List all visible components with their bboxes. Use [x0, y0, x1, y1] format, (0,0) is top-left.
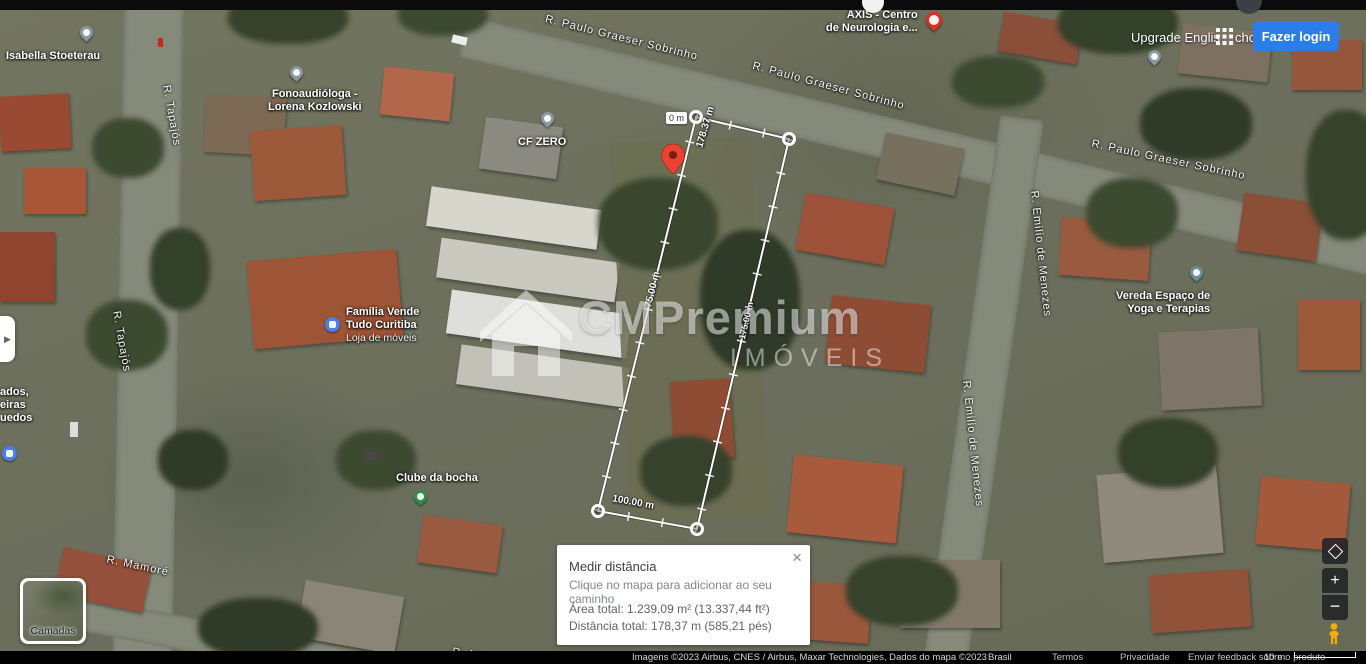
watermark-brand: CMPremium	[578, 290, 861, 345]
shopping-poi-icon[interactable]	[2, 446, 17, 461]
map-vegetation	[198, 598, 318, 658]
chevron-right-icon: ▶	[4, 334, 11, 344]
privacy-link[interactable]: Privacidade	[1120, 652, 1170, 663]
map-vegetation	[952, 56, 1044, 108]
my-location-button[interactable]	[1322, 538, 1348, 564]
upgrade-label[interactable]: Upgrade Englis	[1131, 30, 1220, 45]
map-vegetation	[640, 436, 732, 506]
poi-label-clube-da-bocha[interactable]: Clube da bocha	[396, 472, 478, 485]
map-vegetation	[1140, 88, 1252, 160]
property-marker-icon[interactable]	[661, 144, 685, 174]
distance-total-value: Distância total: 178,37 m (585,21 pés)	[569, 619, 772, 633]
navigation-diamond-icon	[1328, 544, 1344, 560]
watermark-house-icon	[476, 276, 576, 380]
poi-line: uedos	[0, 412, 32, 425]
google-maps-screenshot: R. Paulo Graeser Sobrinho R. Paulo Graes…	[0, 0, 1366, 664]
area-total-value: Área total: 1.239,09 m² (13.337,44 ft²)	[569, 602, 770, 616]
map-building	[250, 125, 347, 201]
map-building	[24, 168, 86, 214]
watermark-subtitle: IMÓVEIS	[686, 344, 890, 373]
poi-subtitle: Loja de móveis	[346, 332, 419, 345]
scale-label: 10 m	[1264, 652, 1285, 663]
poi-label-vereda[interactable]: Vereda Espaço de Yoga e Terapias	[1116, 290, 1210, 316]
close-icon[interactable]: ×	[792, 549, 802, 566]
layers-label: Camadas	[23, 625, 83, 637]
map-vehicle	[70, 422, 78, 437]
poi-line: eiras	[0, 399, 32, 412]
country-label: Brasil	[988, 652, 1012, 663]
map-building	[1158, 327, 1262, 410]
map-building	[417, 515, 503, 574]
map-vegetation	[1118, 418, 1218, 488]
map-building	[0, 93, 71, 152]
map-vegetation	[1306, 110, 1366, 240]
map-building	[796, 193, 895, 266]
map-building	[0, 232, 55, 302]
poi-line: Vereda Espaço de	[1116, 290, 1210, 303]
map-vegetation	[1086, 178, 1178, 248]
scale-bar	[1294, 652, 1356, 658]
poi-line: Fonoaudióloga -	[268, 88, 362, 101]
poi-line: ados,	[0, 386, 32, 399]
map-vegetation	[846, 556, 958, 626]
map-vegetation	[150, 228, 210, 310]
layers-button[interactable]: Camadas	[20, 578, 86, 644]
map-vegetation	[92, 118, 164, 178]
attribution-bar: Imagens ©2023 Airbus, CNES / Airbus, Max…	[0, 651, 1366, 664]
panel-title: Medir distância	[569, 559, 656, 574]
map-vehicle	[366, 452, 380, 460]
pegman-icon	[1320, 620, 1348, 648]
poi-label-edge-fragment: ados, eiras uedos	[0, 386, 32, 425]
poi-line: Lorena Kozlowski	[268, 101, 362, 114]
pegman-button[interactable]	[1320, 620, 1348, 648]
poi-label-cf-zero[interactable]: CF ZERO	[518, 136, 566, 149]
poi-label-familia-vende-tudo[interactable]: Família Vende Tudo Curitiba Loja de móve…	[346, 306, 419, 345]
poi-line: Família Vende	[346, 306, 419, 319]
map-building	[1148, 569, 1252, 634]
poi-label-isabella[interactable]: Isabella Stoeterau	[6, 50, 100, 63]
shopping-poi-icon[interactable]	[325, 317, 340, 332]
top-black-bar	[0, 0, 1366, 10]
zoom-in-button[interactable]: +	[1322, 568, 1348, 593]
side-panel-toggle[interactable]: ▶	[0, 316, 15, 362]
layers-thumbnail: Camadas	[23, 581, 83, 641]
zoom-out-button[interactable]: −	[1322, 594, 1348, 620]
measure-distance-panel: Medir distância Clique no mapa para adic…	[557, 545, 810, 645]
poi-line: Yoga e Terapias	[1116, 303, 1210, 316]
map-building	[786, 454, 904, 543]
imagery-attribution: Imagens ©2023 Airbus, CNES / Airbus, Max…	[632, 652, 987, 663]
poi-line: Tudo Curitiba	[346, 319, 419, 332]
map-vegetation	[598, 178, 718, 270]
map-building	[1298, 300, 1360, 370]
login-button[interactable]: Fazer login	[1253, 21, 1339, 51]
poi-label-fonoaudiologa[interactable]: Fonoaudióloga - Lorena Kozlowski	[268, 88, 362, 114]
measure-start-label: 0 m	[666, 112, 687, 124]
terms-link[interactable]: Termos	[1052, 652, 1083, 663]
google-apps-grid-icon[interactable]	[1216, 28, 1233, 45]
poi-line: de Neurologia e...	[826, 22, 918, 35]
map-building	[380, 66, 455, 121]
map-vegetation	[158, 430, 228, 490]
traffic-signal-icon	[158, 38, 163, 47]
